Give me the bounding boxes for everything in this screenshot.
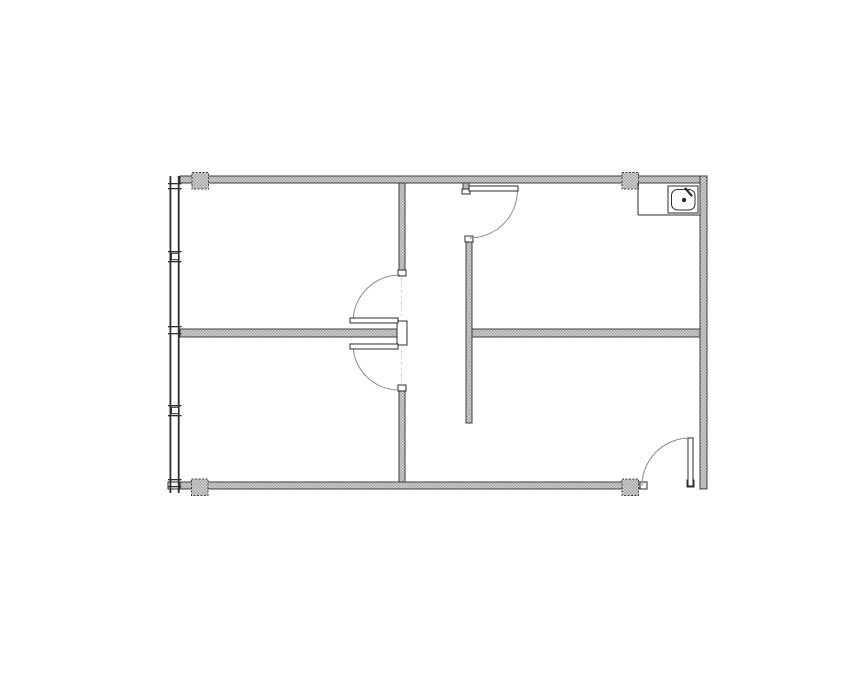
door-entry-top-leaf — [469, 186, 518, 191]
window-wall-line — [170, 176, 172, 493]
column-top-left — [192, 173, 209, 190]
window-mullion-tick — [168, 415, 182, 416]
wall-partition — [466, 241, 472, 423]
wall-mid-right — [472, 329, 700, 337]
window-wall-line — [178, 176, 180, 493]
door-bottom-right-leaf — [688, 438, 693, 486]
window-mullion-tick — [168, 405, 182, 406]
window-mullion-tick — [168, 183, 182, 184]
column-top-right — [622, 173, 639, 190]
wall-bottom — [180, 482, 640, 489]
door-center-lower-leaf — [350, 344, 398, 349]
jamb-partition-top — [465, 236, 473, 242]
window-mullion-tick — [168, 251, 182, 252]
window-mullion-tick — [168, 333, 182, 334]
window-mullion-tick — [168, 479, 182, 480]
wall-right — [700, 176, 707, 489]
window-mullion-joint — [172, 407, 179, 413]
jamb-center — [397, 321, 407, 345]
window-mullion-tick — [168, 261, 182, 262]
wall-entry-stub — [463, 183, 469, 189]
door-center-lower-swing-arc — [353, 346, 399, 390]
jamb-center-lower — [398, 385, 406, 391]
door-bottom-right-swing-arc — [642, 438, 691, 486]
door-center-upper-swing-arc — [353, 275, 400, 321]
floor-plan — [0, 0, 855, 678]
column-bottom-left — [192, 479, 209, 496]
wall-center-upper — [399, 183, 405, 270]
sink-drain-icon — [682, 198, 686, 202]
wall-center-lower — [399, 390, 405, 482]
column-bottom-right — [622, 479, 639, 496]
window-mullion-tick — [168, 486, 182, 487]
window-mullion-joint — [172, 253, 179, 259]
door-center-upper-leaf — [350, 318, 398, 323]
door-entry-top-swing-arc — [470, 191, 518, 238]
wall-mid-left — [180, 329, 398, 337]
window-mullion-tick — [168, 326, 182, 327]
window-mullion-tick — [168, 188, 182, 189]
floor-plan-canvas — [0, 0, 855, 678]
jamb-bottom-opening — [640, 482, 647, 489]
